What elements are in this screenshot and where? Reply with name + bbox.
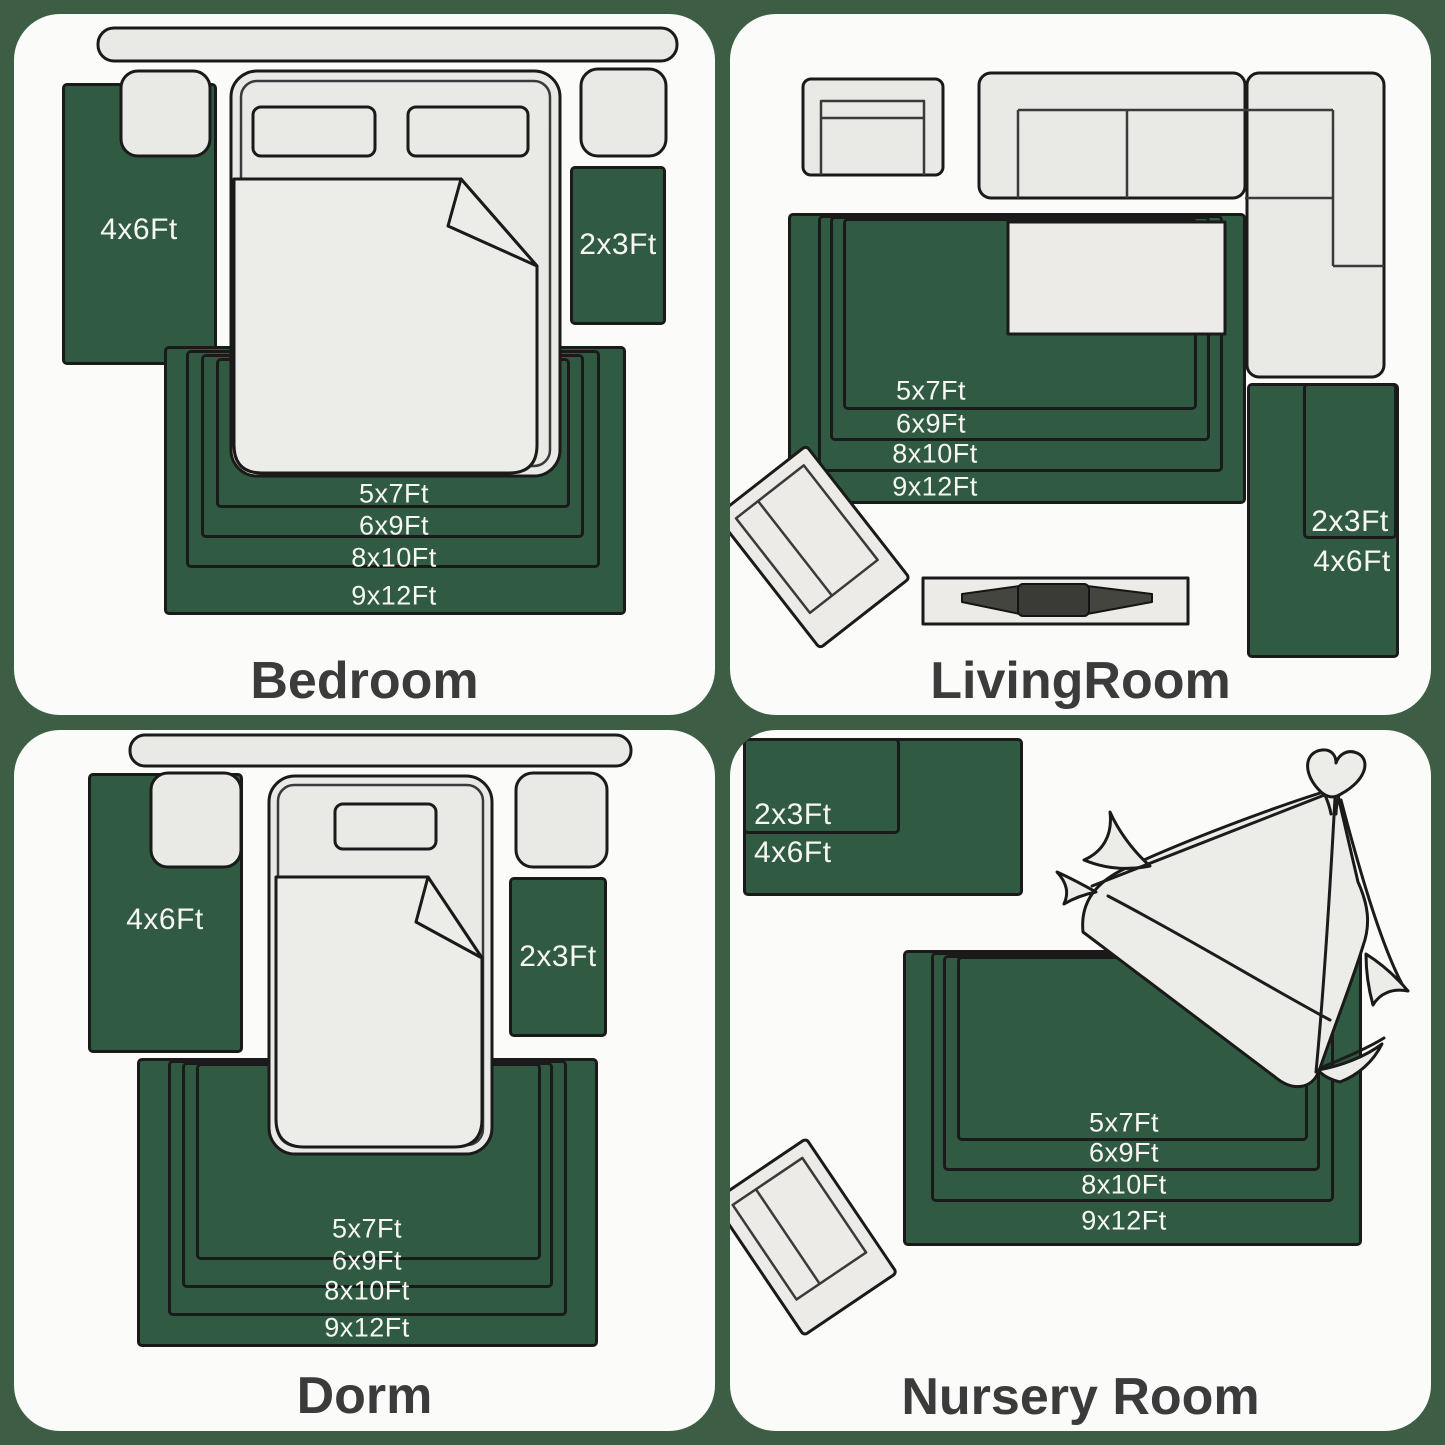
- rug-size-label-8x10ft: 8x10Ft: [351, 545, 437, 572]
- tv-console-icon: [923, 578, 1188, 624]
- panel-nursery: 2x3Ft 4x6Ft 5x7Ft 6x9Ft 8x10Ft 9x12Ft Nu…: [730, 730, 1431, 1431]
- rug-size-label-9x12ft: 9x12Ft: [892, 474, 978, 501]
- nightstand-right-icon: [516, 773, 607, 867]
- panel-dorm: 4x6Ft 2x3Ft 5x7Ft 6x9Ft 8x10Ft 9x12Ft Do…: [14, 730, 715, 1431]
- rug-size-label-6x9ft: 6x9Ft: [896, 411, 966, 438]
- rug-size-label-5x7ft: 5x7Ft: [1089, 1110, 1159, 1137]
- runner-label-2x3ft: 2x3Ft: [1311, 507, 1389, 537]
- blanket-fold: [448, 179, 537, 266]
- heart-knot-icon: [1308, 750, 1365, 797]
- rug-size-label-4x6ft: 4x6Ft: [126, 905, 204, 935]
- rug-size-label-5x7ft: 5x7Ft: [896, 378, 966, 405]
- panel-title-bedroom: Bedroom: [14, 655, 715, 707]
- rug-size-label-4x6ft: 4x6Ft: [100, 215, 178, 245]
- rug-size-label-9x12ft: 9x12Ft: [351, 583, 437, 610]
- rug-size-label-9x12ft: 9x12Ft: [324, 1315, 410, 1342]
- pillow-left: [253, 107, 375, 156]
- corner-rug-label-2x3ft: 2x3Ft: [754, 800, 832, 830]
- rug-size-label-5x7ft: 5x7Ft: [359, 481, 429, 508]
- rug-size-label-9x12ft: 9x12Ft: [1081, 1208, 1167, 1235]
- rug-size-label-5x7ft: 5x7Ft: [332, 1216, 402, 1243]
- panel-title-livingroom: LivingRoom: [730, 655, 1431, 707]
- nightstand-right-icon: [581, 69, 666, 156]
- rug-size-label-2x3ft: 2x3Ft: [519, 942, 597, 972]
- panel-bedroom: 4x6Ft 2x3Ft 5x7Ft 6x9Ft 8x10Ft 9x12Ft Be…: [14, 14, 715, 715]
- rug-size-label-6x9ft: 6x9Ft: [332, 1248, 402, 1275]
- pillow: [335, 804, 436, 849]
- runner-label-4x6ft: 4x6Ft: [1313, 547, 1391, 577]
- corner-rug-label-4x6ft: 4x6Ft: [754, 838, 832, 868]
- rug-size-label-2x3ft: 2x3Ft: [579, 230, 657, 260]
- panel-title-nursery: Nursery Room: [730, 1371, 1431, 1423]
- pillow-right: [408, 107, 528, 156]
- rug-size-guide-infographic: { "colors": { "page_background": "#3d5e4…: [0, 0, 1445, 1445]
- panel-livingroom: 5x7Ft 6x9Ft 8x10Ft 9x12Ft 2x3Ft 4x6Ft Li…: [730, 14, 1431, 715]
- blanket-fold: [416, 877, 482, 958]
- panel-title-dorm: Dorm: [14, 1370, 715, 1422]
- headboard: [130, 735, 631, 766]
- rug-size-label-8x10ft: 8x10Ft: [892, 441, 978, 468]
- rug-size-label-8x10ft: 8x10Ft: [324, 1278, 410, 1305]
- armchair-icon: [803, 79, 943, 175]
- rug-size-label-8x10ft: 8x10Ft: [1081, 1172, 1167, 1199]
- small-play-mat-icon: [730, 1139, 897, 1336]
- rug-size-label-6x9ft: 6x9Ft: [1089, 1140, 1159, 1167]
- rug-size-label-6x9ft: 6x9Ft: [359, 513, 429, 540]
- headboard: [98, 28, 677, 61]
